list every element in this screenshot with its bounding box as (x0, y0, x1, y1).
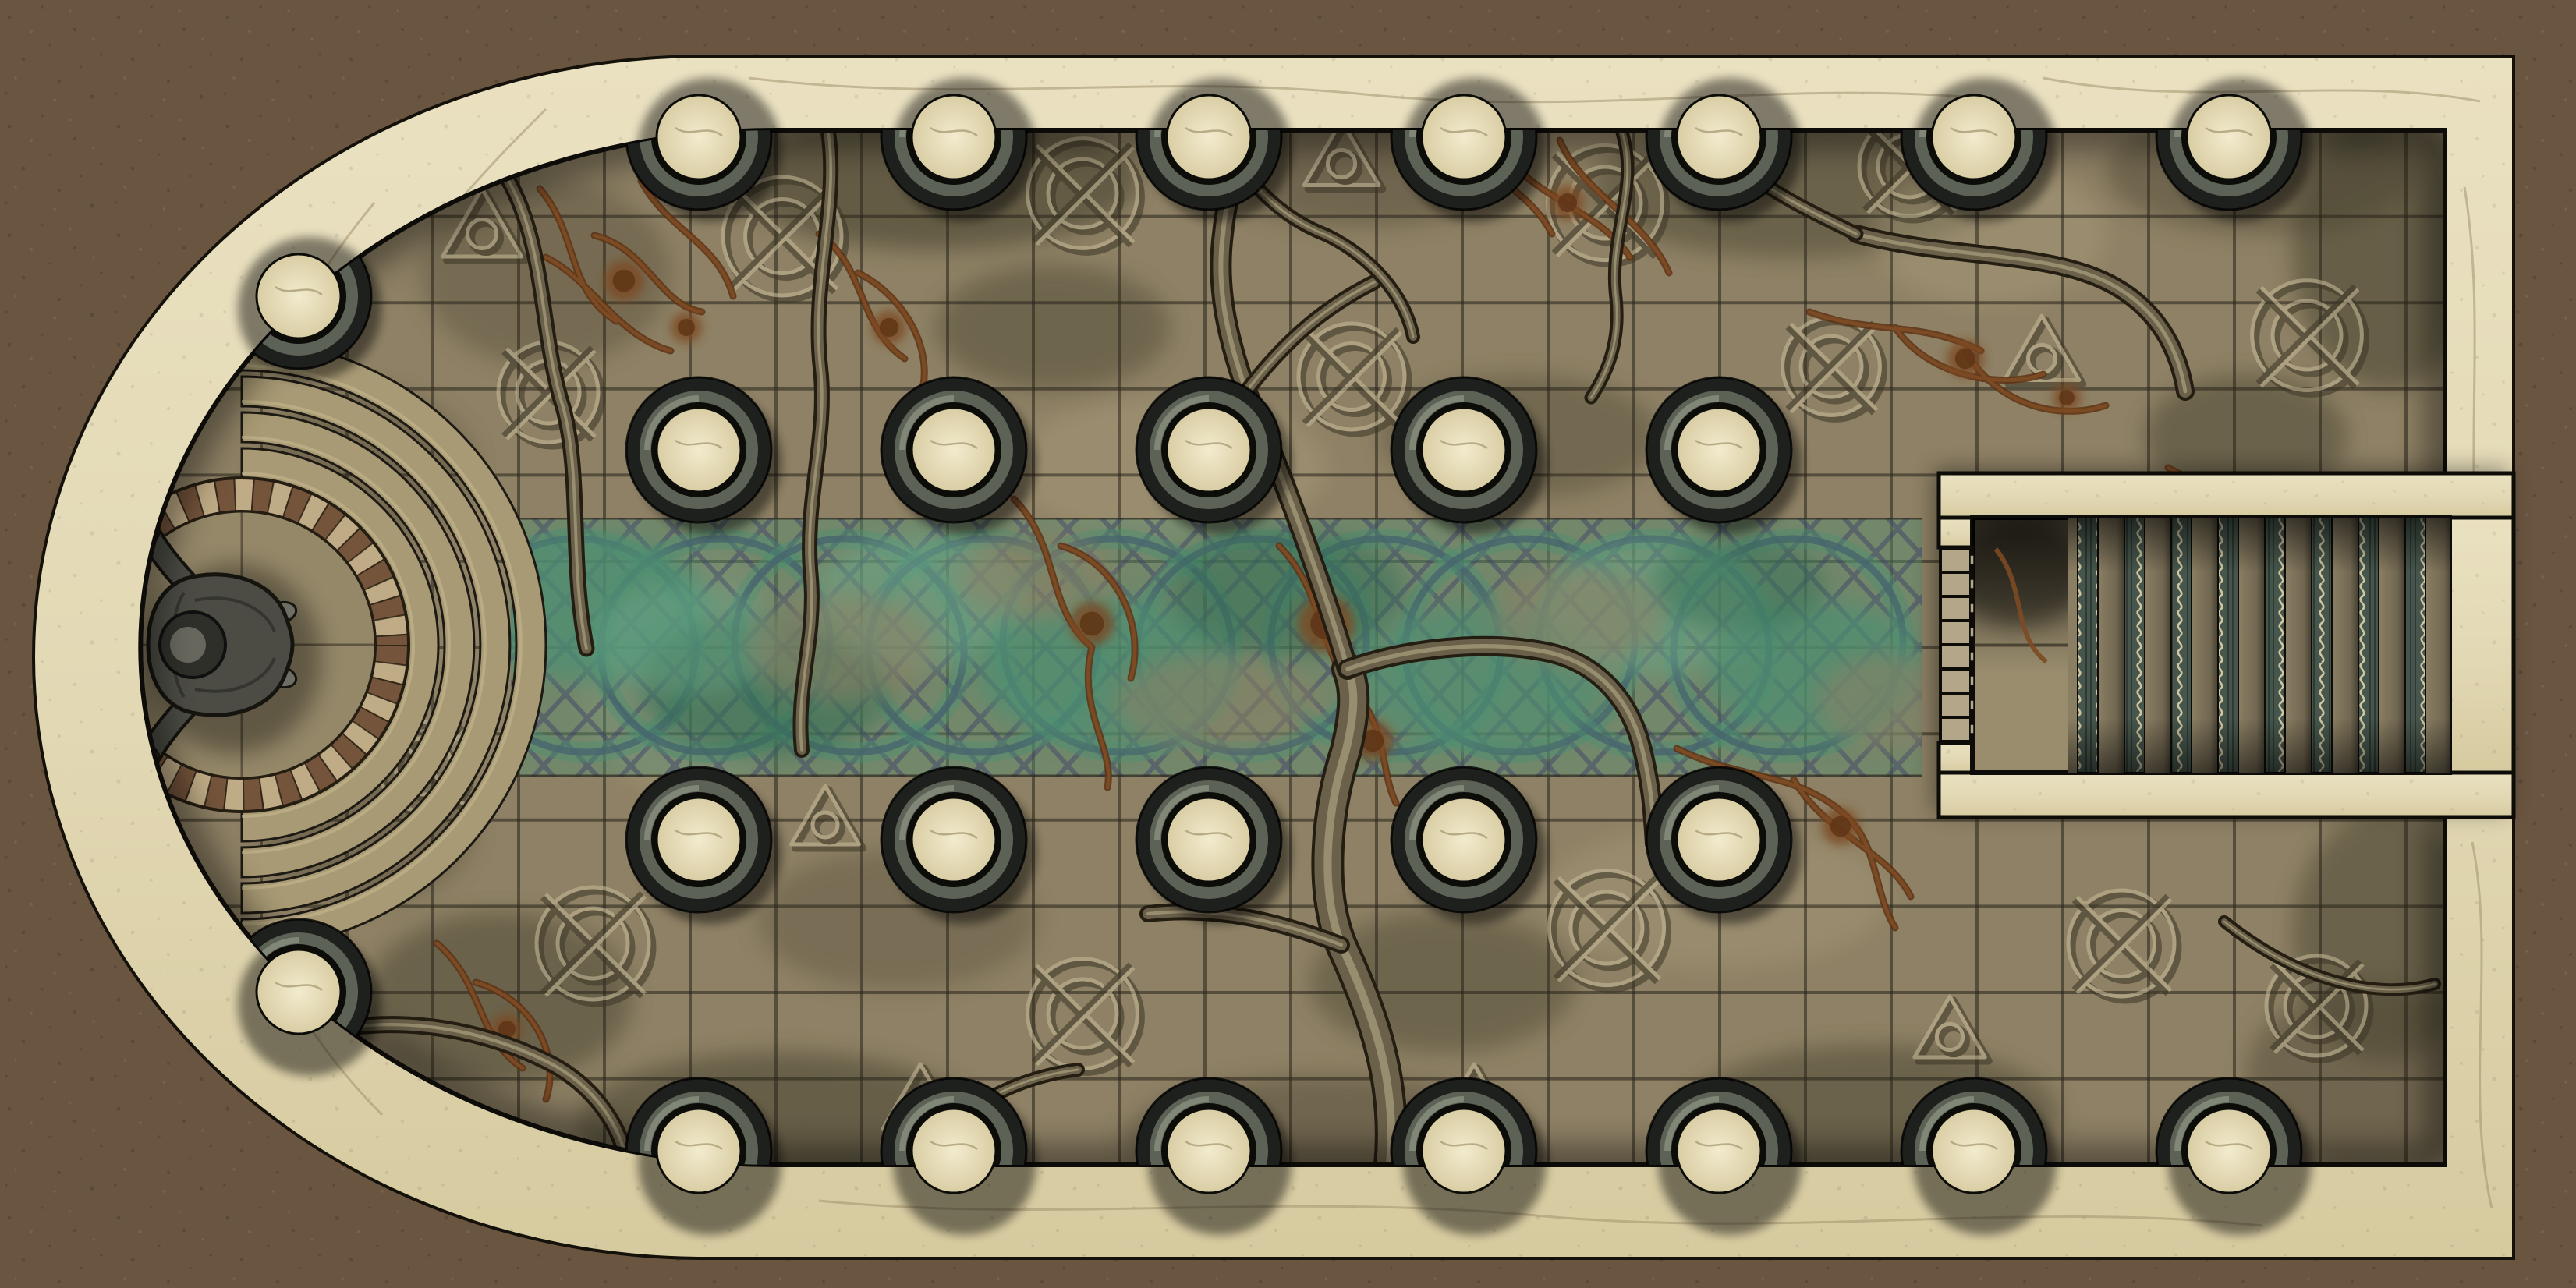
column-top (1677, 798, 1761, 882)
column-top (912, 1109, 996, 1193)
column-top (1677, 95, 1761, 179)
entry-step (1941, 621, 1970, 644)
entry-step (1941, 694, 1970, 717)
column-top (1167, 408, 1251, 492)
column-top (1422, 95, 1506, 179)
column-top (657, 1109, 741, 1193)
statue-head (170, 627, 206, 663)
stair-corridor (1934, 469, 2514, 817)
column-top (657, 408, 741, 492)
column-top (1167, 95, 1251, 179)
column-top (257, 254, 341, 338)
entry-step (1941, 597, 1970, 620)
entry-step (1941, 670, 1970, 692)
entry-step (1941, 646, 1970, 668)
entry-steps (1939, 546, 1974, 745)
entry-step (1941, 573, 1970, 596)
column-top (912, 798, 996, 882)
dungeon-battle-map (0, 0, 2576, 1288)
column-top (912, 95, 996, 179)
column-top (1677, 408, 1761, 492)
column-top (1167, 798, 1251, 882)
column-top (1677, 1109, 1761, 1193)
column-top (912, 408, 996, 492)
column-top (2187, 1109, 2271, 1193)
corridor-interior (1949, 518, 2452, 773)
column-top (1422, 408, 1506, 492)
entry-step (1941, 549, 1970, 571)
column-top (1932, 95, 2016, 179)
column-top (657, 798, 741, 882)
column-top (1422, 798, 1506, 882)
entry-step (1941, 718, 1970, 741)
battle-map-canvas (0, 0, 2576, 1288)
column-top (1422, 1109, 1506, 1193)
column-top (2187, 95, 2271, 179)
column-top (1932, 1109, 2016, 1193)
column-top (1167, 1109, 1251, 1193)
column-top (257, 950, 341, 1034)
stairs-descending (2068, 518, 2452, 773)
column-top (657, 95, 741, 179)
